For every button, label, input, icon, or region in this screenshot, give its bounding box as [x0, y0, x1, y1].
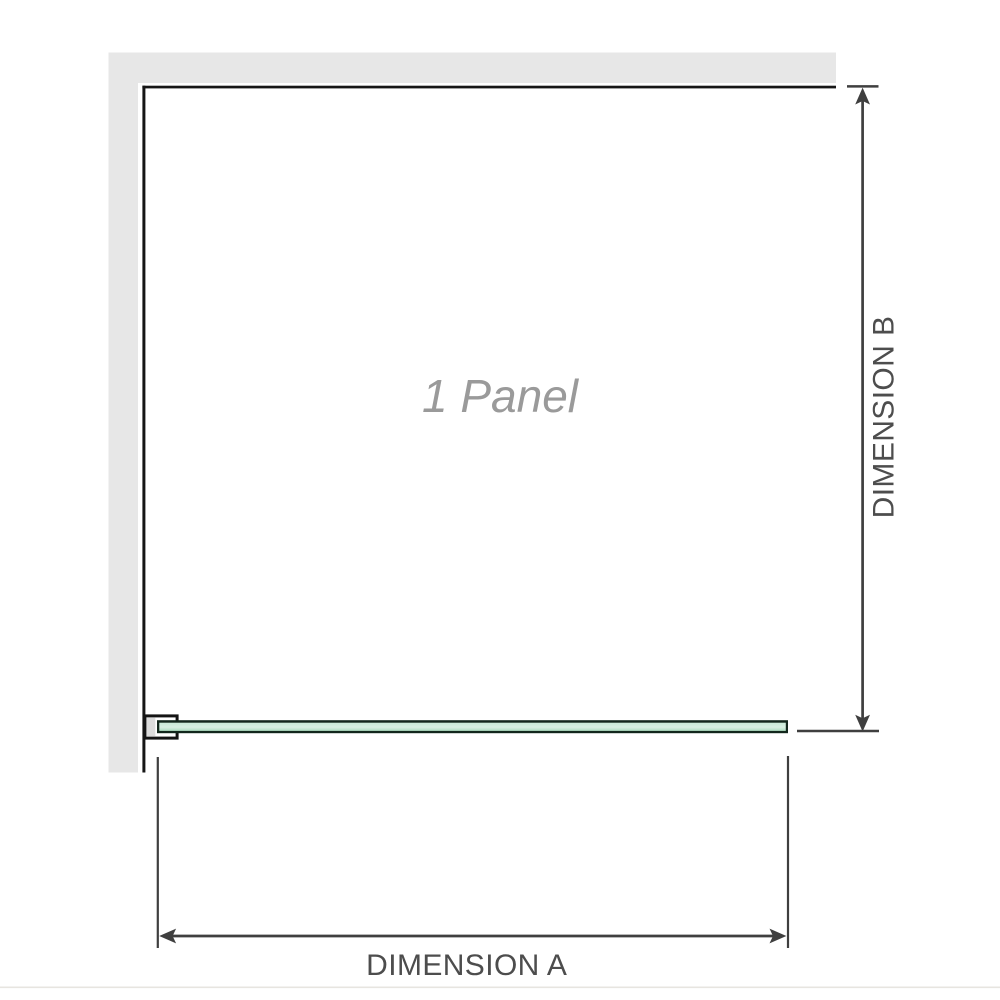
svg-text:DIMENSION A: DIMENSION A — [366, 949, 567, 982]
svg-text:DIMENSION B: DIMENSION B — [868, 316, 901, 519]
svg-text:1 Panel: 1 Panel — [422, 370, 580, 422]
